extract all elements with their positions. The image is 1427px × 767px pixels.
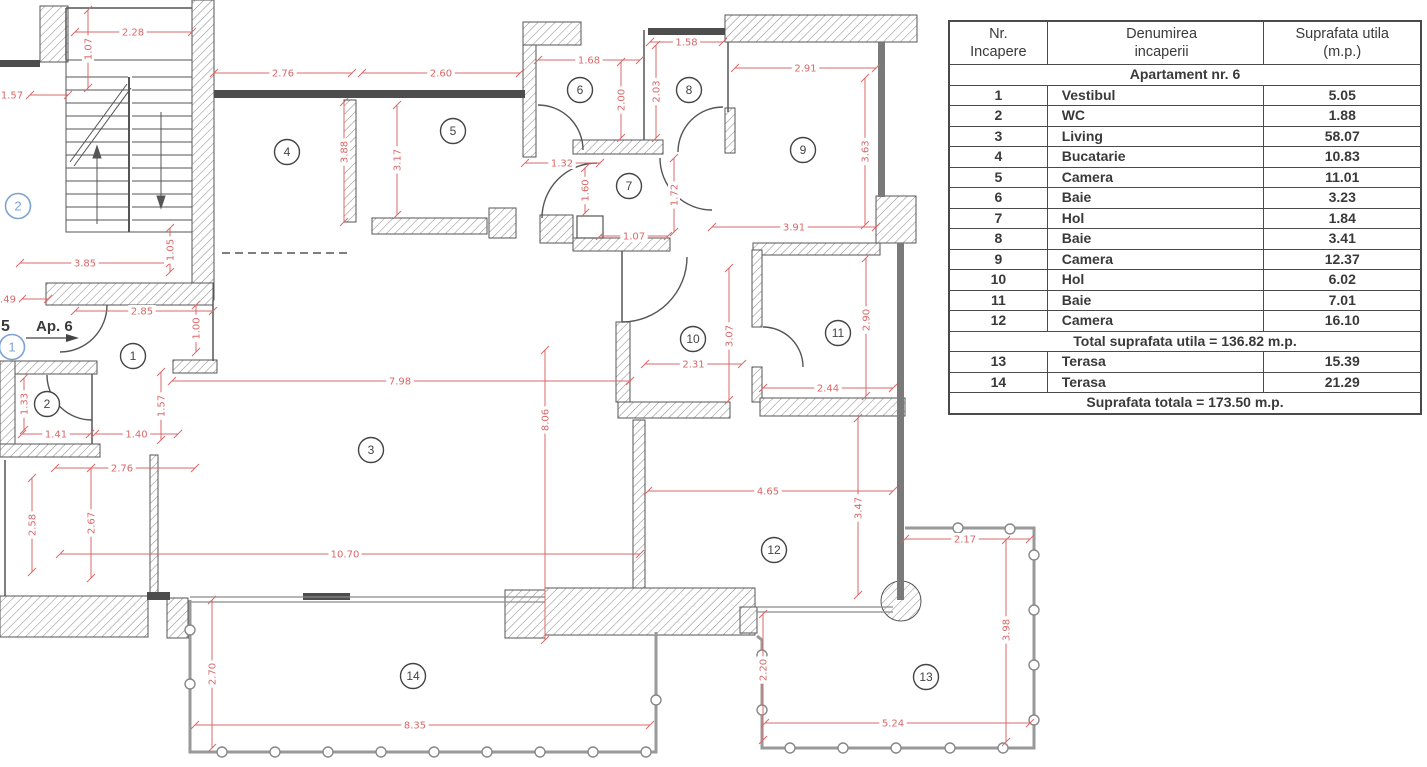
dimension-label: 2.76 bbox=[272, 69, 294, 80]
col-header: Suprafata utila (m.p.) bbox=[1264, 21, 1421, 65]
dimension-label: 1.60 bbox=[581, 179, 592, 201]
room-number: 14 bbox=[406, 669, 420, 683]
dimension-label: 10.70 bbox=[331, 550, 360, 561]
room-number: 9 bbox=[800, 143, 807, 157]
room9-door-arc bbox=[660, 158, 712, 210]
room-number: 3 bbox=[368, 443, 375, 457]
balustrade-posts bbox=[185, 523, 1039, 757]
dimension-label: 1.07 bbox=[623, 232, 645, 243]
dimension-label: 3.63 bbox=[861, 140, 872, 162]
total-utila-row: Total suprafata utila = 136.82 m.p. bbox=[949, 331, 1421, 352]
table-row: 10Hol6.02 bbox=[949, 270, 1421, 291]
balustrades bbox=[190, 528, 1034, 752]
room-number: 1 bbox=[130, 349, 137, 363]
room-number: 5 bbox=[450, 124, 457, 138]
room10-door-arc bbox=[622, 257, 687, 322]
dimension-label: 2.03 bbox=[652, 80, 663, 102]
dimension-label: 3.91 bbox=[783, 223, 805, 234]
dimension-label: 1.32 bbox=[551, 159, 573, 170]
dimension-label: 1.57 bbox=[157, 395, 168, 417]
dimension-label: 2.76 bbox=[111, 464, 133, 475]
room-number: 7 bbox=[626, 179, 633, 193]
room-number: 8 bbox=[686, 83, 693, 97]
terrace13-balustrade bbox=[757, 528, 1034, 748]
dimension-label: 1.58 bbox=[675, 38, 697, 49]
dimension-label: 2.60 bbox=[430, 69, 452, 80]
dimension-label: 2.58 bbox=[28, 514, 39, 536]
table-row: 11Baie7.01 bbox=[949, 290, 1421, 311]
dimension-label: 4.65 bbox=[757, 487, 779, 498]
dimension-label: 1.68 bbox=[578, 56, 600, 67]
shaft-box bbox=[577, 216, 603, 238]
col-header: Nr. Incapere bbox=[949, 21, 1047, 65]
dimension-label: 3.17 bbox=[393, 149, 404, 171]
dimension-label: 5.24 bbox=[882, 719, 904, 730]
dimension-label: 8.06 bbox=[541, 409, 552, 431]
dimension-label: 2.44 bbox=[817, 384, 839, 395]
table-row: 5Camera11.01 bbox=[949, 167, 1421, 188]
grand-total-row: Suprafata totala = 173.50 m.p. bbox=[949, 393, 1421, 414]
dimension-label: 2.90 bbox=[862, 309, 873, 331]
dimension-label: 3.88 bbox=[340, 141, 351, 163]
entry-marker-number: 2 bbox=[14, 199, 21, 214]
room-number: 12 bbox=[767, 543, 781, 557]
dimension-label: 1.07 bbox=[84, 38, 95, 60]
col-header: Denumirea incaperii bbox=[1047, 21, 1264, 65]
dimension-label: 2.00 bbox=[617, 89, 628, 111]
dimension-label: 1.40 bbox=[125, 430, 147, 441]
room-number: 2 bbox=[44, 397, 51, 411]
apartment-label: Ap. 6 bbox=[36, 318, 73, 335]
dimension-label: 2.67 bbox=[87, 512, 98, 534]
area-table-header: Nr. IncapereDenumirea incaperiiSuprafata… bbox=[949, 21, 1421, 65]
table-row: 13Terasa15.39 bbox=[949, 352, 1421, 373]
staircase bbox=[66, 60, 192, 232]
dimension-label: 2.17 bbox=[954, 535, 976, 546]
dimension-label: 1.00 bbox=[192, 317, 203, 339]
section-title-row: Apartament nr. 6 bbox=[949, 65, 1421, 86]
room-number: 4 bbox=[284, 145, 291, 159]
dimension-label: 1.57 bbox=[1, 91, 23, 102]
table-row: 14Terasa21.29 bbox=[949, 372, 1421, 393]
dimension-label: 2.70 bbox=[208, 663, 219, 685]
dimension-label: 3.07 bbox=[725, 325, 736, 347]
entry-marker-number: 1 bbox=[8, 340, 15, 355]
table-row: 9Camera12.37 bbox=[949, 249, 1421, 270]
table-row: 4Bucatarie10.83 bbox=[949, 147, 1421, 168]
table-row: 3Living58.07 bbox=[949, 126, 1421, 147]
adjacent-apartment-label: 5 bbox=[1, 318, 10, 335]
table-row: 2WC1.88 bbox=[949, 106, 1421, 127]
dimension-label: 1.05 bbox=[166, 239, 177, 261]
dimension-label: 3.85 bbox=[74, 259, 96, 270]
dimension-label: 1.72 bbox=[670, 184, 681, 206]
room-number: 11 bbox=[832, 326, 845, 340]
room11-door-arc bbox=[763, 327, 803, 367]
dimension-label: 1.33 bbox=[20, 393, 31, 415]
room-number: 13 bbox=[919, 670, 933, 684]
room-number: 6 bbox=[577, 83, 584, 97]
dimension-label: 2.85 bbox=[131, 307, 153, 318]
room8-door-arc bbox=[678, 107, 723, 152]
dimension-label: 3.47 bbox=[854, 497, 865, 519]
dimension-label: .49 bbox=[0, 295, 16, 306]
dimension-label: 7.98 bbox=[389, 377, 411, 388]
dimension-label: 2.31 bbox=[682, 360, 704, 371]
room-number: 10 bbox=[686, 332, 700, 346]
area-table: Nr. IncapereDenumirea incaperiiSuprafata… bbox=[948, 20, 1422, 415]
dimension-label: 8.35 bbox=[404, 721, 426, 732]
dimension-label: 2.20 bbox=[759, 659, 770, 681]
table-row: 1Vestibul5.05 bbox=[949, 85, 1421, 106]
table-row: 6Baie3.23 bbox=[949, 188, 1421, 209]
dimension-label: 1.41 bbox=[45, 430, 67, 441]
table-row: 12Camera16.10 bbox=[949, 311, 1421, 332]
floorplan-page: 2.281.071.572.762.601.681.582.912.002.03… bbox=[0, 0, 1427, 767]
dimension-label: 2.28 bbox=[122, 28, 144, 39]
area-table-body: Apartament nr. 61Vestibul5.052WC1.883Liv… bbox=[949, 65, 1421, 414]
dimension-label: 3.98 bbox=[1002, 619, 1013, 641]
dimension-label: 2.91 bbox=[794, 64, 816, 75]
table-row: 8Baie3.41 bbox=[949, 229, 1421, 250]
table-row: 7Hol1.84 bbox=[949, 208, 1421, 229]
